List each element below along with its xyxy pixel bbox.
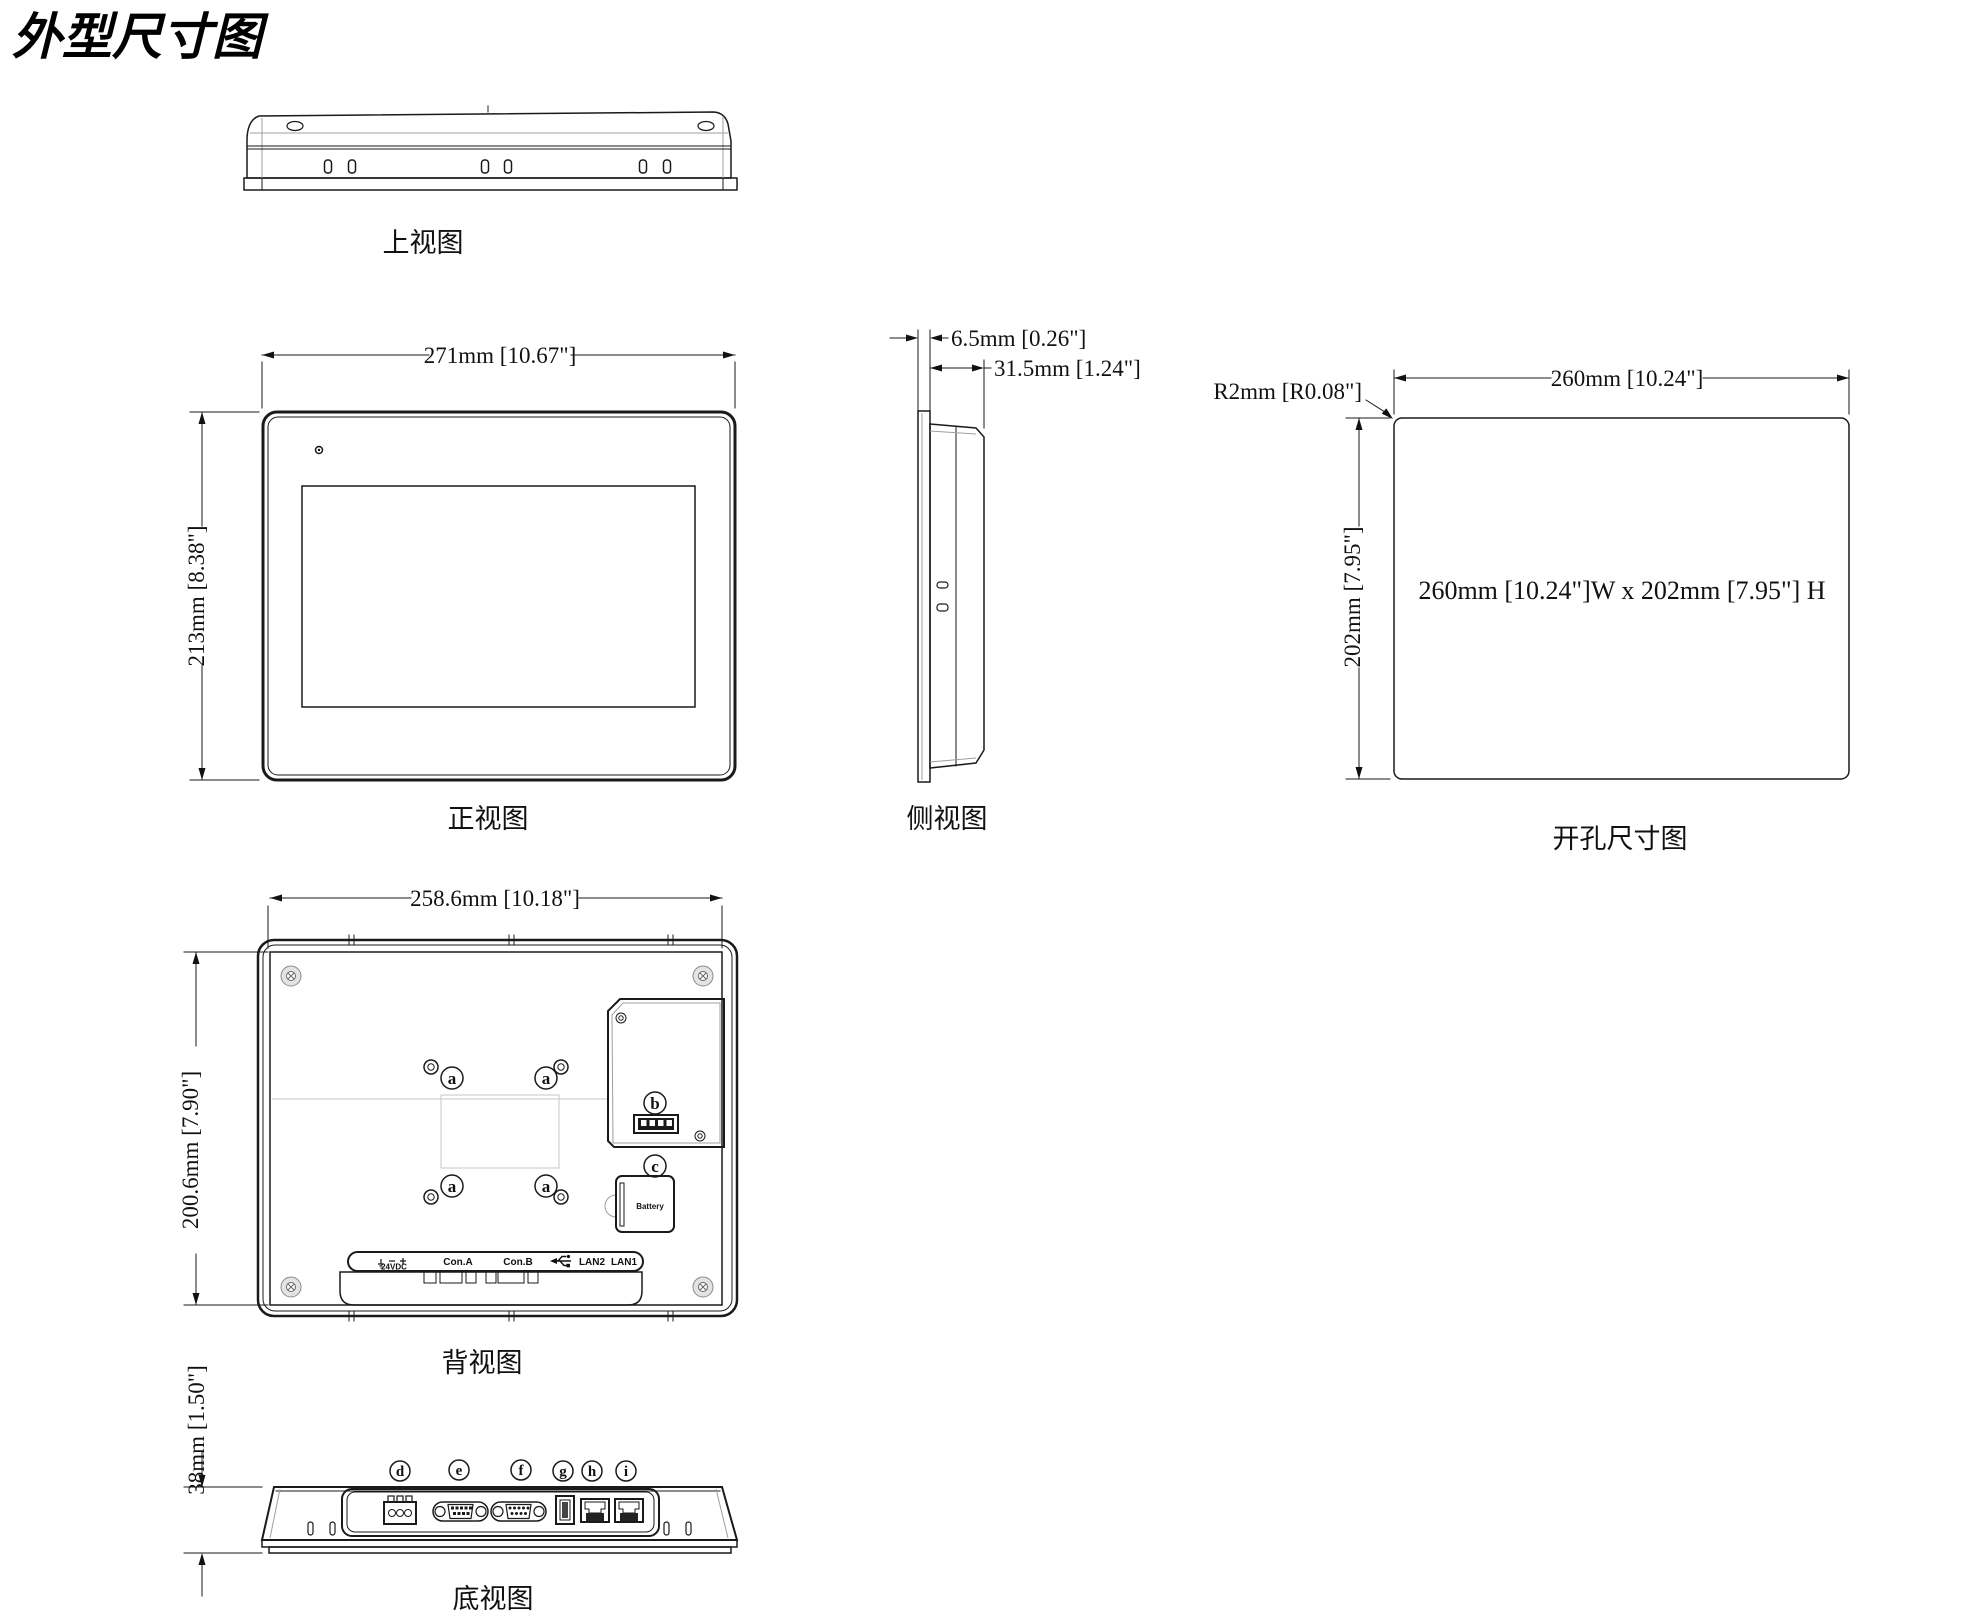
bottom-flank-slots <box>308 1522 691 1535</box>
side-depth-dimension: 31.5mm [1.24"] <box>930 356 1141 428</box>
bottom-base-plate <box>262 1540 737 1547</box>
power-value-label: 24VDC <box>381 1263 407 1272</box>
rear-corner-screws <box>281 966 713 1297</box>
front-height-dimension: 213mm [8.38"] <box>184 412 259 780</box>
page-title: 外型尺寸图 <box>12 9 269 65</box>
callout-a-1: a <box>448 1069 457 1088</box>
front-screen <box>302 486 695 707</box>
cutout-width-dimension: 260mm [10.24"] <box>1394 366 1849 414</box>
callout-e: e <box>456 1463 463 1479</box>
lan-port-2 <box>581 1499 609 1522</box>
front-bezel <box>263 412 735 780</box>
com-port-a <box>433 1502 488 1521</box>
callout-i: i <box>624 1464 628 1480</box>
callout-b: b <box>650 1094 659 1113</box>
rear-view: 258.6mm [10.18"] 200.6mm [7.90"] <box>178 886 737 1378</box>
outline-dimension-sheet: 外型尺寸图 上视图 <box>0 0 1977 1616</box>
cutout-width-text: 260mm [10.24"] <box>1551 366 1704 391</box>
side-bezel-text: 6.5mm [0.26"] <box>951 326 1086 351</box>
dimension-drawing-canvas: 外型尺寸图 上视图 <box>0 0 1977 1616</box>
callout-g: g <box>559 1464 567 1480</box>
callout-c: c <box>651 1157 659 1176</box>
callout-h: h <box>588 1464 597 1480</box>
front-height-text: 213mm [8.38"] <box>184 526 209 667</box>
power-connector <box>384 1496 416 1524</box>
battery-label: Battery <box>636 1202 664 1211</box>
bottom-view: 38mm [1.50"] d e f g h i <box>184 1365 737 1614</box>
usb-icon <box>550 1255 571 1267</box>
cutout-radius-text: R2mm [R0.08"] <box>1213 379 1362 404</box>
con-a-label: Con.A <box>443 1257 472 1268</box>
rear-port-strip: 24VDC Con.A Con.B LAN2 LAN1 <box>348 1252 643 1272</box>
battery-cover: Battery <box>605 1176 674 1232</box>
rear-view-label: 背视图 <box>442 1348 523 1378</box>
cutout-note-text: 260mm [10.24"]W x 202mm [7.95"] H <box>1418 576 1825 605</box>
callout-a-3: a <box>448 1177 457 1196</box>
con-b-label: Con.B <box>503 1257 532 1268</box>
lan2-label: LAN2 <box>579 1257 606 1268</box>
rear-height-dimension: 200.6mm [7.90"] <box>178 952 268 1305</box>
bottom-callouts: d e f g h i <box>390 1460 636 1481</box>
front-view: 271mm [10.67"] 213mm [8.38"] 正视图 <box>184 343 735 834</box>
bottom-height-dimension: 38mm [1.50"] <box>184 1365 262 1596</box>
callout-a-4: a <box>542 1177 551 1196</box>
top-view: 上视图 <box>244 106 737 258</box>
side-depth-text: 31.5mm [1.24"] <box>994 356 1141 381</box>
cutout-height-text: 202mm [7.95"] <box>1340 527 1365 668</box>
led-indicator <box>316 447 323 454</box>
side-bezel-edge <box>918 411 930 782</box>
battery-finger-notch <box>605 1195 616 1217</box>
com-port-b <box>491 1502 546 1521</box>
side-view: 6.5mm [0.26"] 31.5mm [1.24"] 侧视图 <box>890 326 1141 834</box>
side-vent-slot-1 <box>937 582 948 588</box>
side-vent-slot-2 <box>937 604 948 611</box>
rear-center-plate <box>441 1095 559 1168</box>
bottom-height-text: 38mm [1.50"] <box>184 1365 209 1495</box>
front-width-text: 271mm [10.67"] <box>424 343 577 368</box>
rear-height-text: 200.6mm [7.90"] <box>178 1071 203 1229</box>
top-view-label: 上视图 <box>383 228 464 258</box>
cutout-height-dimension: 202mm [7.95"] <box>1340 418 1390 779</box>
side-body <box>930 424 984 768</box>
rear-width-dimension: 258.6mm [10.18"] <box>268 886 722 948</box>
top-latch-hole-left <box>287 122 303 131</box>
callout-a-2: a <box>542 1069 551 1088</box>
lan-port-1 <box>615 1499 643 1522</box>
usb-port <box>556 1496 574 1524</box>
lan1-label: LAN1 <box>611 1257 638 1268</box>
dip-switch <box>634 1115 678 1133</box>
rear-width-text: 258.6mm [10.18"] <box>410 886 580 911</box>
cutout-view-label: 开孔尺寸图 <box>1553 824 1688 854</box>
bottom-view-label: 底视图 <box>453 1584 534 1614</box>
top-mounting-slots <box>325 160 671 173</box>
front-view-label: 正视图 <box>448 804 529 834</box>
callout-a-balloons: a a a a <box>441 1067 557 1197</box>
rear-connector-recess <box>340 1272 642 1305</box>
cutout-view: 260mm [10.24"] R2mm [R0.08"] 202mm [7.95… <box>1213 366 1849 854</box>
front-width-dimension: 271mm [10.67"] <box>262 343 735 408</box>
callout-f: f <box>519 1463 525 1479</box>
callout-d: d <box>396 1464 405 1480</box>
cutout-radius-callout: R2mm [R0.08"] <box>1213 379 1393 419</box>
top-latch-hole-right <box>698 122 714 131</box>
side-view-label: 侧视图 <box>907 804 988 834</box>
